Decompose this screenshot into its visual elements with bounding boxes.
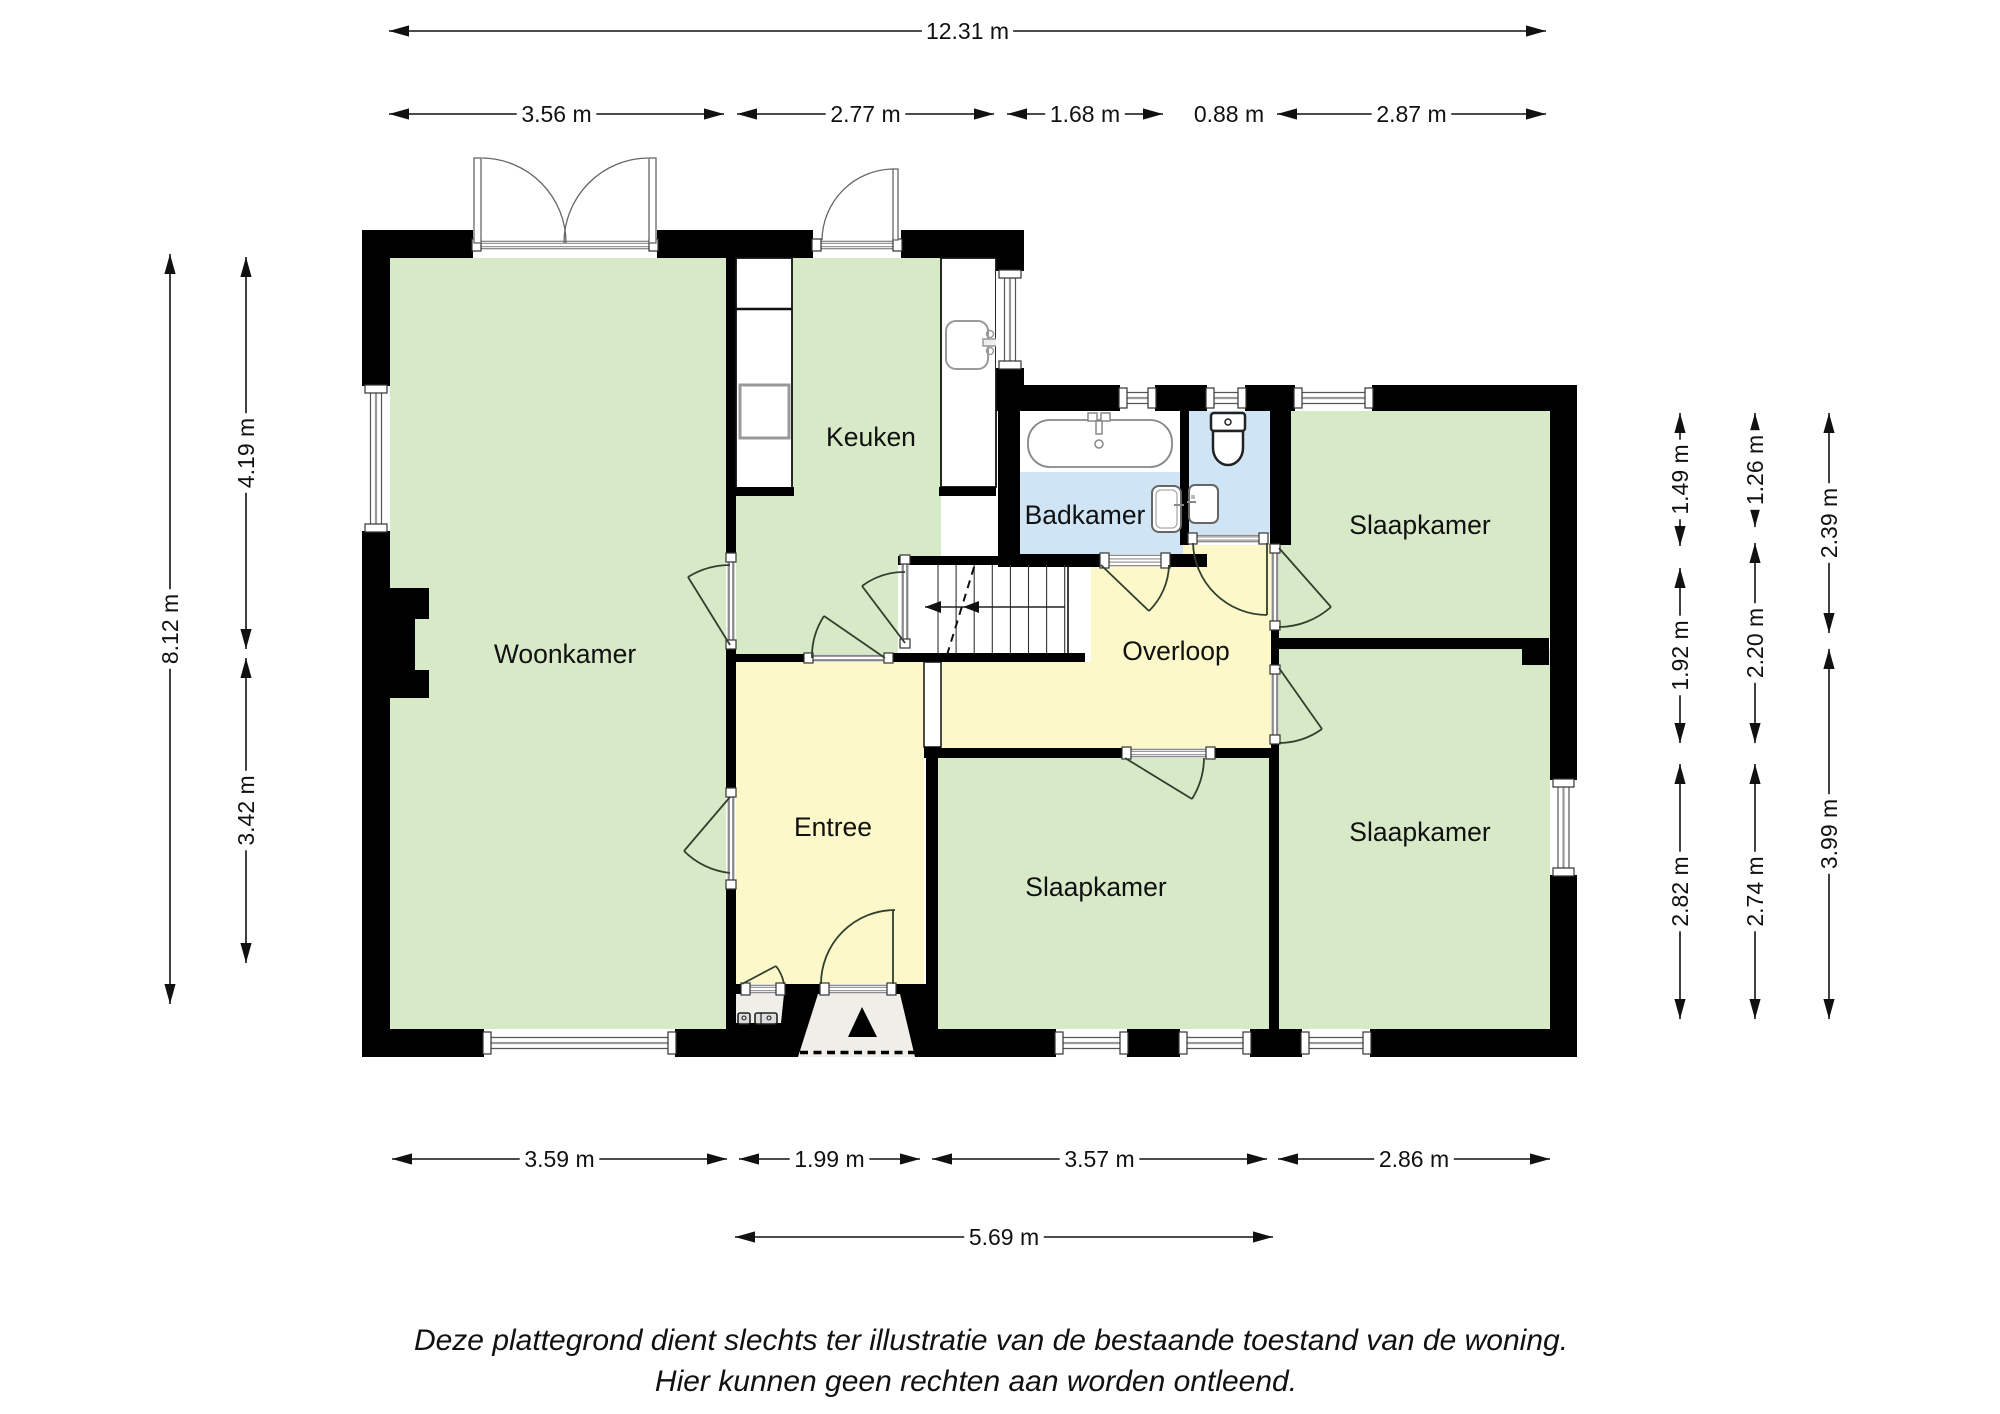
svg-text:2.82 m: 2.82 m — [1667, 856, 1693, 926]
svg-text:2.87 m: 2.87 m — [1376, 101, 1446, 127]
svg-text:Slaapkamer: Slaapkamer — [1025, 872, 1167, 902]
svg-text:2.77 m: 2.77 m — [830, 101, 900, 127]
svg-text:Entree: Entree — [794, 812, 872, 842]
svg-text:Overloop: Overloop — [1122, 636, 1230, 666]
svg-text:2.86 m: 2.86 m — [1379, 1146, 1449, 1172]
svg-text:Keuken: Keuken — [826, 422, 916, 452]
svg-text:8.12 m: 8.12 m — [157, 594, 183, 664]
svg-text:3.59 m: 3.59 m — [524, 1146, 594, 1172]
svg-text:Slaapkamer: Slaapkamer — [1349, 510, 1491, 540]
svg-text:2.20 m: 2.20 m — [1742, 608, 1768, 678]
svg-text:Woonkamer: Woonkamer — [494, 639, 637, 669]
svg-text:1.68 m: 1.68 m — [1050, 101, 1120, 127]
svg-text:5.69 m: 5.69 m — [969, 1224, 1039, 1250]
svg-text:3.57 m: 3.57 m — [1064, 1146, 1134, 1172]
svg-text:3.56 m: 3.56 m — [521, 101, 591, 127]
svg-text:2.39 m: 2.39 m — [1816, 488, 1842, 558]
svg-text:Slaapkamer: Slaapkamer — [1349, 817, 1491, 847]
svg-text:1.99 m: 1.99 m — [794, 1146, 864, 1172]
svg-text:1.49 m: 1.49 m — [1667, 444, 1693, 514]
svg-text:4.19 m: 4.19 m — [233, 418, 259, 488]
svg-text:Deze plattegrond dient slechts: Deze plattegrond dient slechts ter illus… — [414, 1324, 1568, 1357]
svg-text:0.88 m: 0.88 m — [1194, 101, 1264, 127]
svg-text:3.42 m: 3.42 m — [233, 775, 259, 845]
svg-text:2.74 m: 2.74 m — [1742, 856, 1768, 926]
svg-text:1.26 m: 1.26 m — [1742, 435, 1768, 505]
svg-text:12.31 m: 12.31 m — [926, 18, 1009, 44]
svg-text:Badkamer: Badkamer — [1025, 500, 1146, 530]
svg-text:3.99 m: 3.99 m — [1816, 799, 1842, 869]
svg-text:1.92 m: 1.92 m — [1667, 620, 1693, 690]
svg-text:Hier kunnen geen rechten aan w: Hier kunnen geen rechten aan worden ontl… — [655, 1365, 1297, 1398]
